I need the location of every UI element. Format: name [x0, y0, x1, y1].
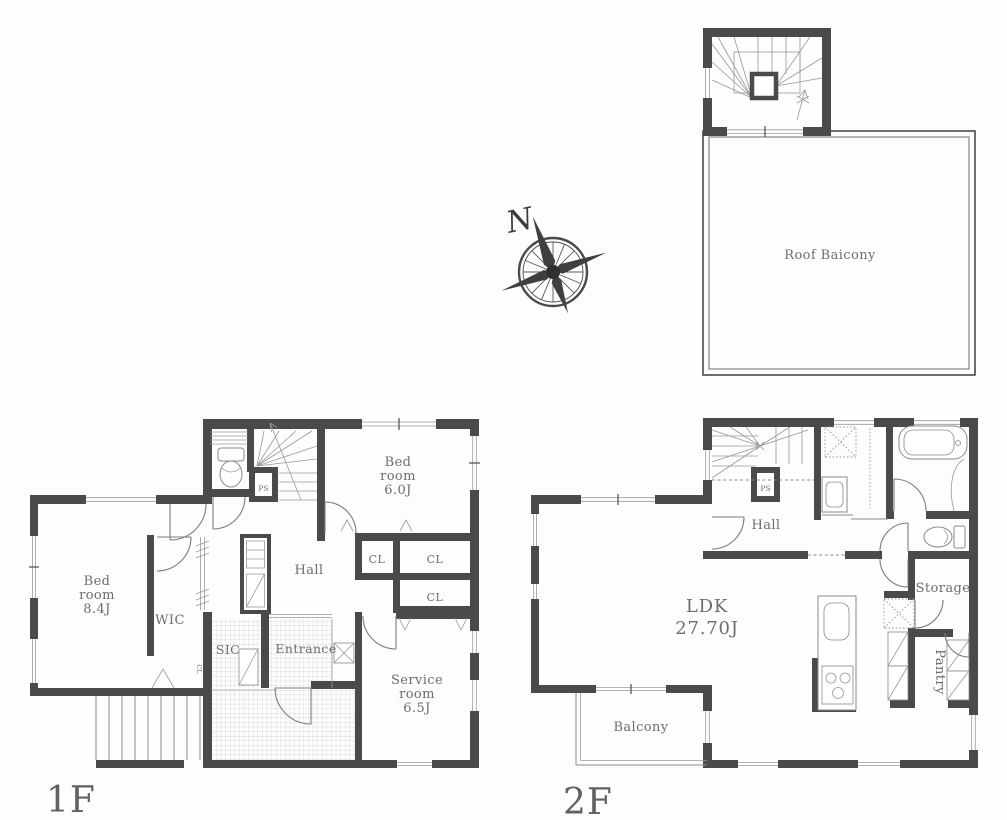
label-bedroom-main-2: room	[79, 588, 115, 603]
compass-rose: N	[481, 197, 621, 332]
roof-window-left	[703, 68, 712, 98]
washer-pan-icon	[825, 427, 856, 457]
pantry-shelves-icon	[888, 632, 969, 700]
storage-inner-door	[915, 600, 943, 628]
compass-north-label: N	[502, 201, 538, 241]
label-service-room-1: Service	[391, 673, 443, 688]
toilet-1f-door	[213, 497, 245, 529]
porch-tile-floor	[211, 690, 357, 760]
pipe-space-1f: PS	[249, 467, 278, 502]
floor2-plan: PS	[531, 418, 978, 820]
label-pantry: Pantry	[932, 649, 947, 695]
roof-stairs-icon	[712, 37, 822, 120]
label-hall-2f: Hall	[751, 518, 780, 533]
storage-entry-door	[880, 559, 908, 587]
refrigerator-icon	[884, 599, 914, 628]
kitchen-sink-icon	[824, 603, 849, 640]
wic-door	[157, 537, 191, 571]
roof-balcony-label: Roof Baicony	[784, 248, 876, 263]
label-bedroom-main-1: Bed	[84, 574, 111, 589]
service-room-door	[363, 616, 396, 649]
entrance-shoebox-icon	[334, 643, 354, 663]
label-entrance: Entrance	[275, 641, 336, 656]
floor-plan-drawing: Roof Baicony N	[0, 0, 1007, 820]
label-closet2: CL	[427, 553, 444, 566]
toilet-1f-icon	[210, 432, 248, 487]
roof-stairs-up-arrow	[797, 90, 808, 120]
sic-shelf-icon	[239, 649, 258, 685]
bathtub-icon	[899, 426, 967, 511]
floor1-plan: PS	[29, 418, 480, 820]
label-bedroom-main-3: 8.4J	[83, 602, 111, 617]
label-service-room-2: room	[399, 687, 435, 702]
label-closet1: CL	[369, 553, 386, 566]
floor-plan-page: Roof Baicony N	[0, 0, 1007, 820]
toilet-2f-door	[880, 523, 908, 551]
label-service-room-3: 6.5J	[403, 701, 431, 716]
label-storage: Storage	[916, 581, 971, 596]
approach-steps-base	[96, 760, 184, 768]
bathroom-counter-line	[951, 459, 964, 511]
roof-window-bottom	[727, 126, 803, 137]
label-bedroom-second-3: 6.0J	[384, 483, 412, 498]
label-sic: SIC	[216, 642, 240, 657]
label-closet3: CL	[427, 591, 444, 604]
floor1-title: 1F	[46, 780, 96, 820]
pipe-space-2f: PS	[751, 467, 780, 502]
pipe-space-1f-label: PS	[258, 484, 268, 493]
bedroom-main-door	[170, 504, 206, 540]
label-closet-small: CL	[195, 664, 203, 674]
label-balcony: Balcony	[613, 720, 668, 735]
compass-center-dot	[546, 265, 560, 279]
kitchen-icon	[818, 596, 856, 710]
label-ldk-2: 27.70J	[675, 618, 739, 639]
approach-steps-icon	[96, 696, 200, 760]
label-hall-1f: Hall	[294, 563, 323, 578]
label-bedroom-second-1: Bed	[385, 455, 412, 470]
bathroom-door	[894, 479, 926, 511]
wic-sliding-door	[196, 537, 209, 610]
label-ldk-1: LDK	[686, 596, 728, 617]
floor2-title: 2F	[563, 782, 613, 820]
label-bedroom-second-2: room	[380, 469, 416, 484]
pipe-space-2f-label: PS	[760, 484, 770, 493]
compass-points	[481, 197, 621, 332]
vanity-icon	[822, 477, 847, 512]
roof-plan: Roof Baicony	[703, 28, 975, 375]
hall-2f-door	[712, 517, 744, 549]
toilet-2f-icon	[924, 526, 965, 548]
roof-stair-enclosure	[703, 28, 831, 137]
hall-cabinet-icon	[242, 536, 269, 612]
label-wic: WIC	[155, 613, 185, 628]
